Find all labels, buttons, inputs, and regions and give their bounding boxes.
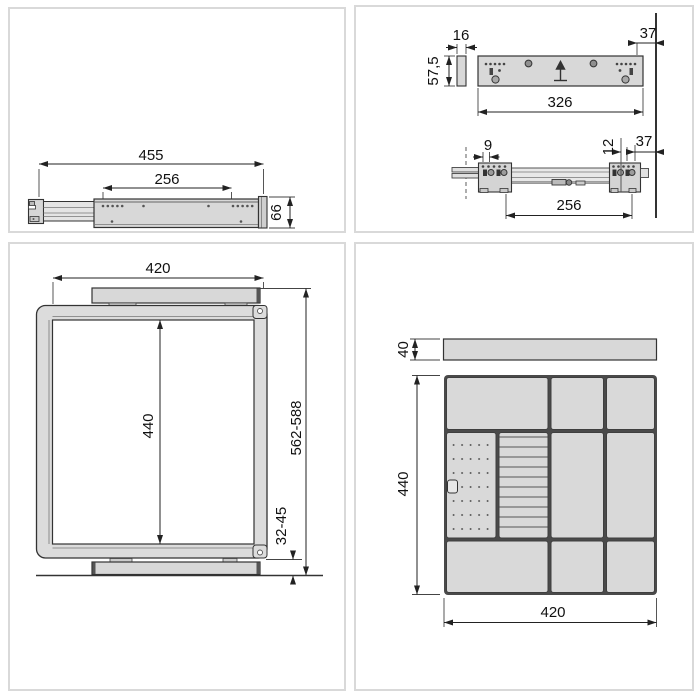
- rail-side-view: [452, 138, 649, 199]
- side-wall-offset-label: 37: [636, 133, 653, 150]
- tray-drawing: [444, 375, 657, 595]
- handle-cutout: [448, 480, 458, 493]
- width-label: 420: [145, 260, 170, 277]
- spacer-piece: [457, 56, 466, 86]
- rib-slats: [500, 436, 548, 534]
- dimension-total-length: 455: [39, 147, 264, 197]
- panel-frame-front-view: 420: [8, 242, 346, 691]
- dimension-tray-width: 420: [444, 598, 657, 627]
- plate-slot-right: [630, 68, 634, 75]
- dimension-front-offset: 9: [473, 137, 500, 162]
- total-length-label: 455: [138, 147, 163, 164]
- front-offset-label: 9: [484, 137, 492, 154]
- technical-drawing-page: 455 256: [0, 0, 700, 700]
- bar-depth-label: 40: [395, 341, 412, 358]
- dimension-hole-spacing: 256: [103, 171, 232, 203]
- corner-fitting-top: [258, 309, 263, 314]
- tray-width-label: 420: [540, 604, 565, 621]
- plate-length-label: 326: [547, 94, 572, 111]
- top-slide-bar: [92, 288, 260, 307]
- mounting-plate-drawing: [478, 56, 643, 86]
- dimension-rear-offset: 12: [600, 139, 627, 161]
- dimension-spacer-height: 57,5: [425, 56, 455, 86]
- tray-depth-label: 440: [395, 471, 412, 496]
- drawer-slide-drawing: [29, 197, 268, 229]
- plate-slot-left: [490, 68, 494, 75]
- height-label: 66: [268, 204, 285, 221]
- spacer-height-label: 57,5: [425, 56, 442, 85]
- panel-tray-top-view: 40: [354, 242, 694, 691]
- corner-fitting-bottom: [258, 550, 263, 555]
- panel-mounting-views: 16 57,5: [354, 5, 694, 233]
- bottom-slide-bar: [92, 559, 260, 575]
- front-bracket: [479, 163, 512, 193]
- spacer-thickness-label: 16: [453, 27, 470, 44]
- panel-slide-side-view: 455 256: [8, 7, 346, 233]
- dimension-bar-depth: 40: [395, 339, 440, 360]
- dimension-top-wall-offset: 37: [629, 25, 663, 55]
- tray-top-view-svg: 40: [356, 244, 692, 689]
- dimension-tray-depth: 440: [395, 376, 440, 595]
- rear-bracket: [610, 163, 641, 193]
- rear-offset-label: 12: [600, 139, 617, 156]
- top-wall-offset-label: 37: [640, 25, 657, 42]
- frame-front-view-svg: 420: [10, 244, 344, 689]
- dimension-rail-hole-spacing: 256: [506, 194, 632, 219]
- pegboard-dots: [453, 438, 494, 534]
- inner-height-label: 440: [140, 413, 157, 438]
- dimension-bottom-clearance: 32-45: [266, 507, 302, 584]
- latch-detail: [552, 180, 566, 186]
- dimension-spacer-thickness: 16: [446, 27, 477, 54]
- dimension-side-wall-offset: 37: [629, 133, 662, 161]
- mounting-views-svg: 16 57,5: [356, 7, 692, 231]
- bottom-clearance-label: 32-45: [273, 507, 290, 545]
- dimension-plate-length: 326: [478, 88, 643, 116]
- slide-side-view-svg: 455 256: [10, 9, 344, 231]
- mounting-height-label: 562-588: [288, 400, 305, 455]
- tray-front-bar: [444, 339, 657, 360]
- rail-hole-spacing-label: 256: [556, 197, 581, 214]
- dimension-height: 66: [268, 197, 295, 228]
- hole-spacing-label: 256: [154, 171, 179, 188]
